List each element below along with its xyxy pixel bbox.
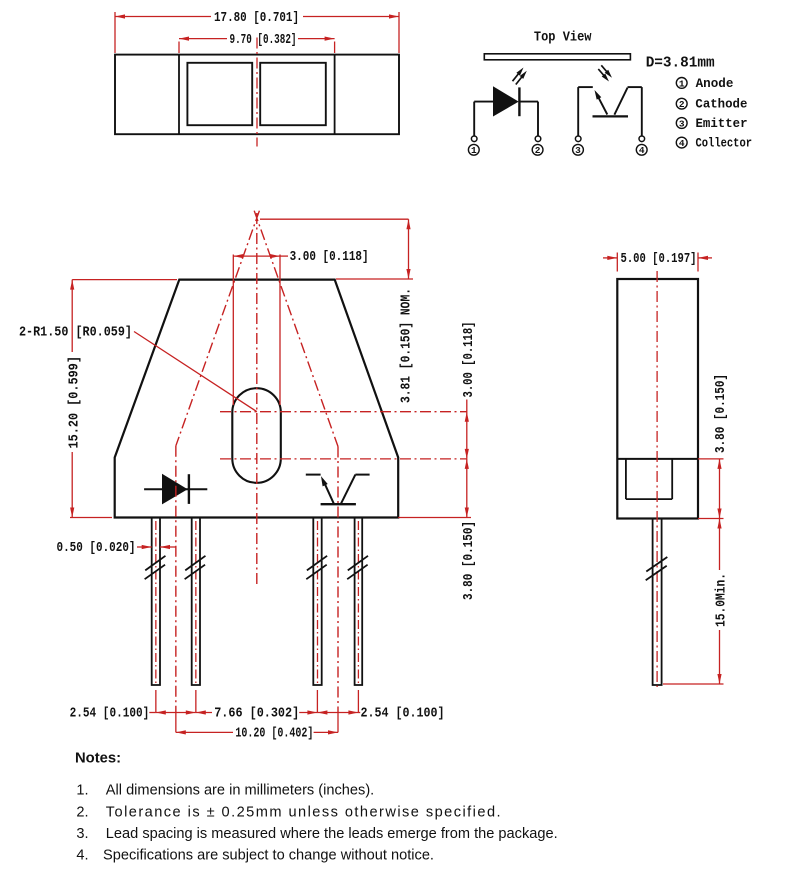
svg-text:Tolerance is ± 0.25mm unless o: Tolerance is ± 0.25mm unless otherwise s…	[106, 805, 502, 821]
svg-text:Collector: Collector	[696, 136, 753, 151]
svg-text:0.50 [0.020]: 0.50 [0.020]	[57, 541, 136, 556]
svg-text:17.80 [0.701]: 17.80 [0.701]	[214, 11, 299, 26]
svg-text:Lead spacing is measured where: Lead spacing is measured where the leads…	[106, 826, 558, 842]
svg-text:Cathode: Cathode	[695, 97, 747, 112]
svg-text:7.66 [0.302]: 7.66 [0.302]	[214, 707, 299, 722]
svg-text:Top View: Top View	[534, 30, 592, 45]
svg-text:2.: 2.	[76, 805, 88, 821]
svg-text:4.: 4.	[76, 848, 88, 864]
svg-text:3.00 [0.118]: 3.00 [0.118]	[290, 250, 369, 265]
svg-text:2.54 [0.100]: 2.54 [0.100]	[361, 707, 445, 722]
svg-text:3.00 [0.118]: 3.00 [0.118]	[462, 321, 477, 397]
svg-text:10.20 [0.402]: 10.20 [0.402]	[235, 726, 313, 741]
svg-text:1.: 1.	[76, 783, 88, 799]
svg-text:Anode: Anode	[696, 76, 734, 91]
svg-text:Emitter: Emitter	[696, 116, 748, 131]
svg-text:3.80 [0.150]: 3.80 [0.150]	[714, 374, 729, 453]
svg-text:2-R1.50 [R0.059]: 2-R1.50 [R0.059]	[19, 326, 132, 341]
svg-text:3.: 3.	[76, 826, 88, 842]
svg-text:15.0Min.: 15.0Min.	[715, 573, 730, 627]
svg-text:9.70 [0.382]: 9.70 [0.382]	[230, 33, 297, 48]
svg-text:2.54 [0.100]: 2.54 [0.100]	[70, 707, 150, 722]
svg-text:3.81 [0.150] NOM.: 3.81 [0.150] NOM.	[400, 288, 415, 403]
svg-text:All dimensions are in millimet: All dimensions are in millimeters (inche…	[106, 783, 374, 799]
svg-text:Specifications are subject to: Specifications are subject to change wit…	[103, 848, 434, 864]
svg-text:2: 2	[679, 99, 685, 110]
svg-text:1: 1	[679, 78, 685, 89]
svg-text:D=3.81mm: D=3.81mm	[646, 55, 715, 71]
svg-text:3: 3	[575, 145, 581, 156]
svg-text:15.20 [0.599]: 15.20 [0.599]	[67, 356, 82, 449]
svg-text:1: 1	[471, 145, 477, 156]
svg-text:3.80 [0.150]: 3.80 [0.150]	[462, 521, 477, 600]
svg-text:2: 2	[535, 145, 541, 156]
svg-text:5.00 [0.197]: 5.00 [0.197]	[621, 252, 697, 267]
svg-text:Notes:: Notes:	[75, 750, 121, 767]
svg-text:3: 3	[679, 118, 685, 129]
svg-text:4: 4	[639, 145, 645, 156]
svg-text:4: 4	[679, 138, 685, 149]
